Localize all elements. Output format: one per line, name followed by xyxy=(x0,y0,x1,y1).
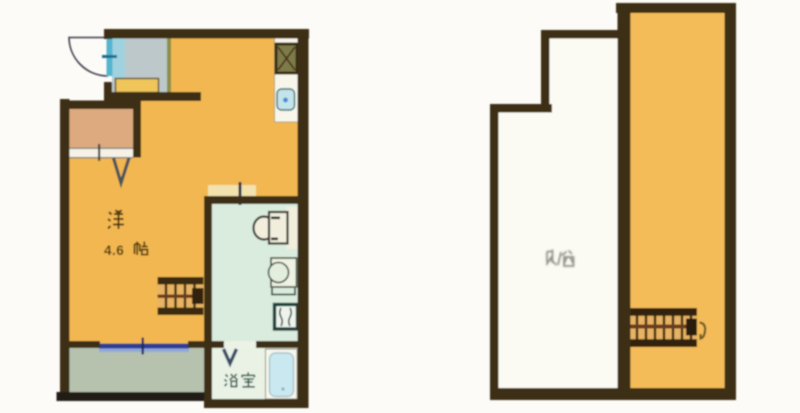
svg-text:4.6: 4.6 xyxy=(104,243,124,258)
